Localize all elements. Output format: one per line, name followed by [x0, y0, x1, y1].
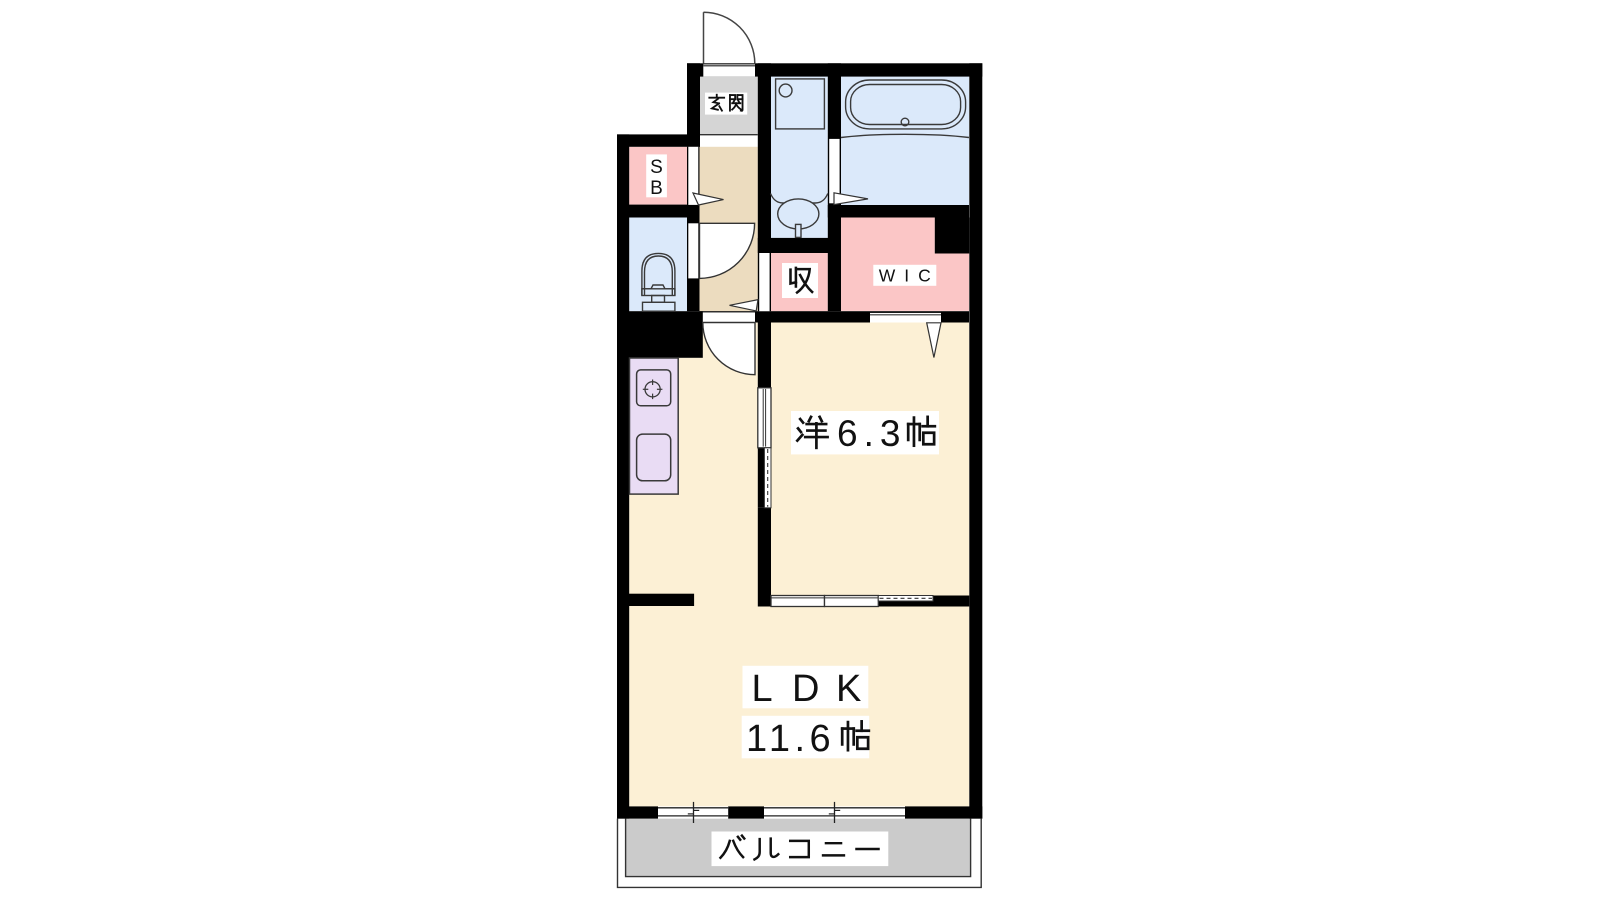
svg-text:K: K [836, 668, 861, 710]
svg-text:11.6: 11.6 [746, 718, 835, 760]
svg-text:S: S [650, 157, 663, 178]
svg-text:B: B [650, 178, 663, 199]
svg-text:WIC: WIC [879, 266, 931, 286]
svg-text:D: D [792, 668, 819, 710]
svg-text:L: L [752, 668, 773, 710]
svg-text:6.3: 6.3 [837, 413, 906, 454]
